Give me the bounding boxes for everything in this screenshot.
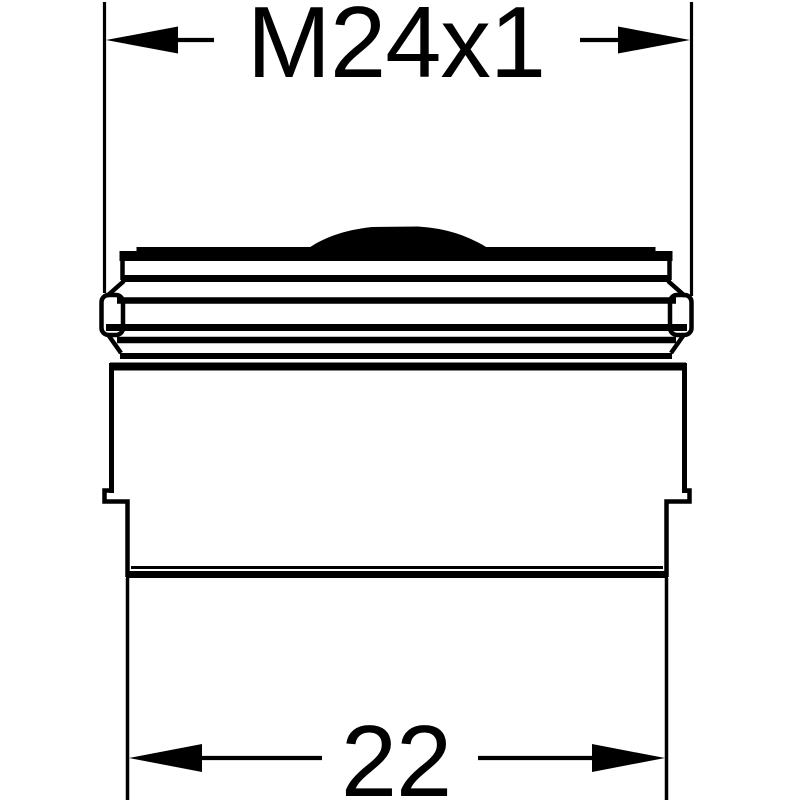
arrow-right-icon: [618, 27, 690, 54]
thread-size-label: M24x1: [247, 0, 545, 99]
step-skirt-right: [667, 491, 690, 578]
technical-drawing: M24x1: [0, 0, 800, 800]
bottom-dimension: 22: [128, 578, 667, 800]
arrow-left-icon: [106, 27, 178, 54]
outlet-width-label: 22: [341, 706, 451, 800]
arrow-right-icon: [592, 744, 665, 772]
part-profile: [102, 227, 692, 578]
arrow-left-icon: [129, 744, 202, 772]
step-skirt-left: [105, 491, 128, 578]
cap-plate: [120, 247, 673, 261]
dome-top: [306, 227, 491, 251]
drawing-canvas: M24x1: [0, 0, 800, 800]
